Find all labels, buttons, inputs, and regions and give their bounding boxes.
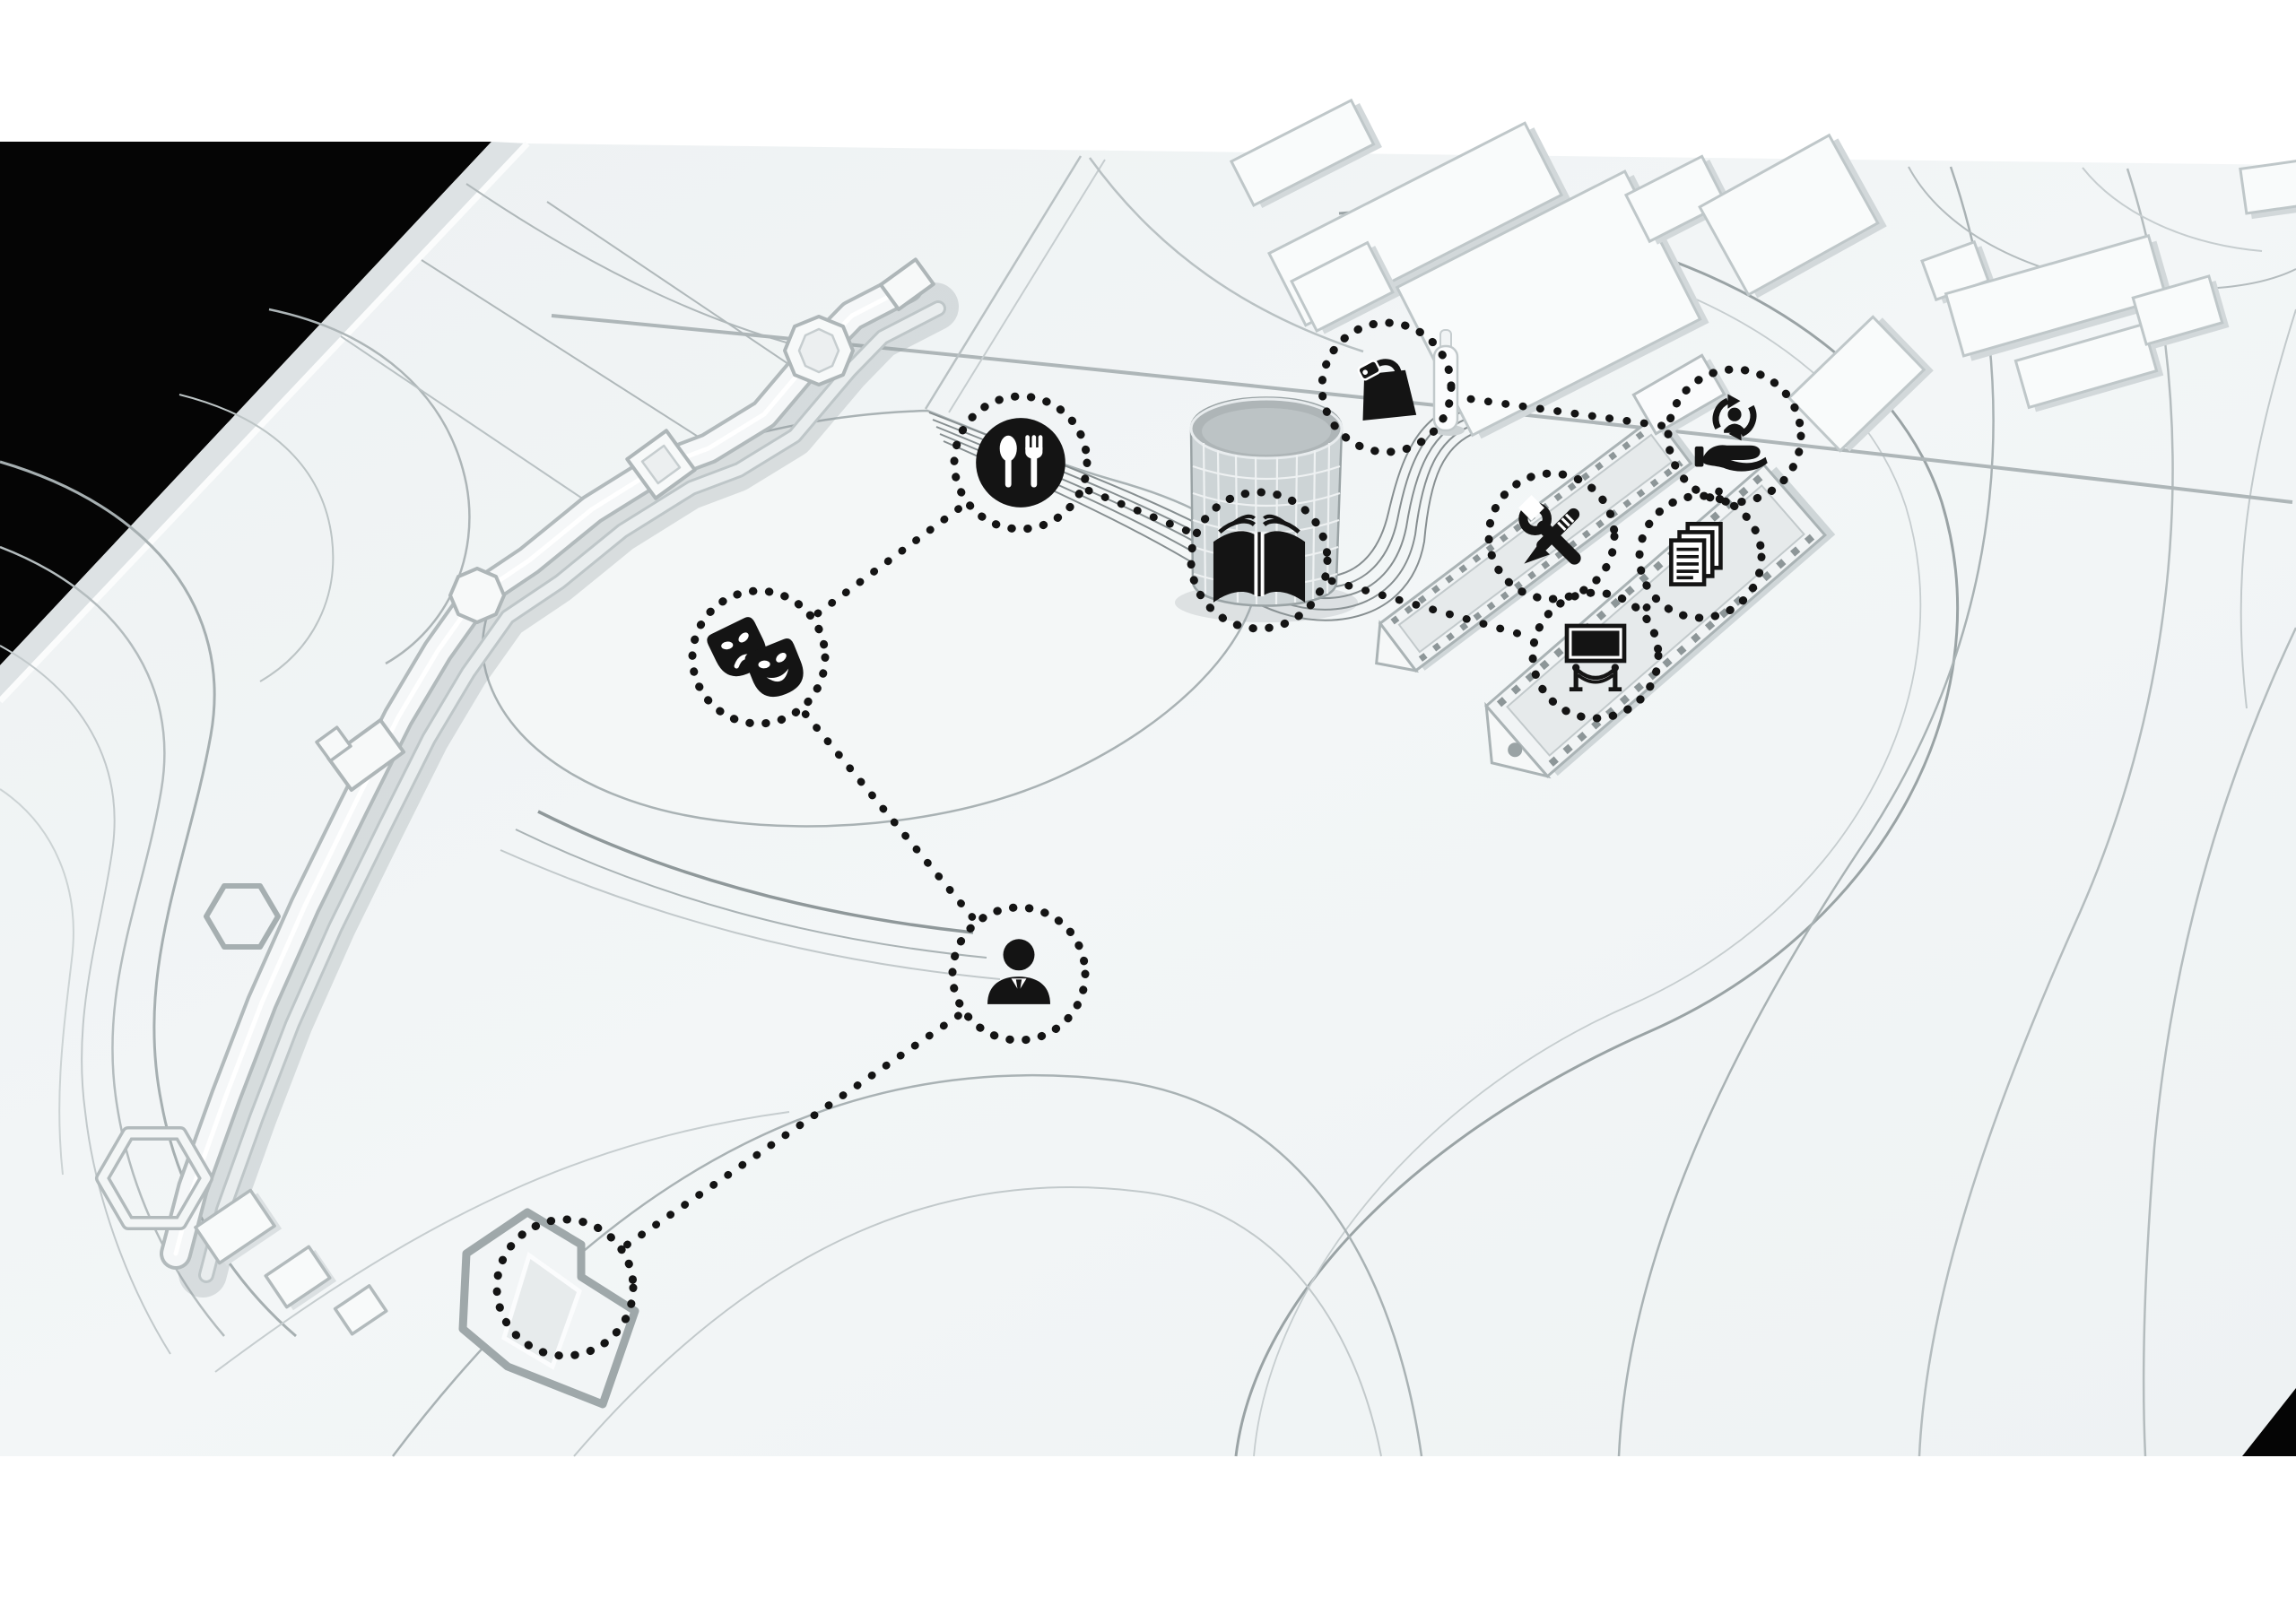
restaurant-icon: [976, 418, 1065, 508]
documents-icon: [1671, 524, 1720, 584]
exhibition-icon: [1565, 624, 1627, 691]
site-diagram-stage: [0, 0, 2296, 1623]
site-diagram-canvas: [0, 0, 2296, 1623]
octagon-tower-lower: [450, 568, 504, 622]
